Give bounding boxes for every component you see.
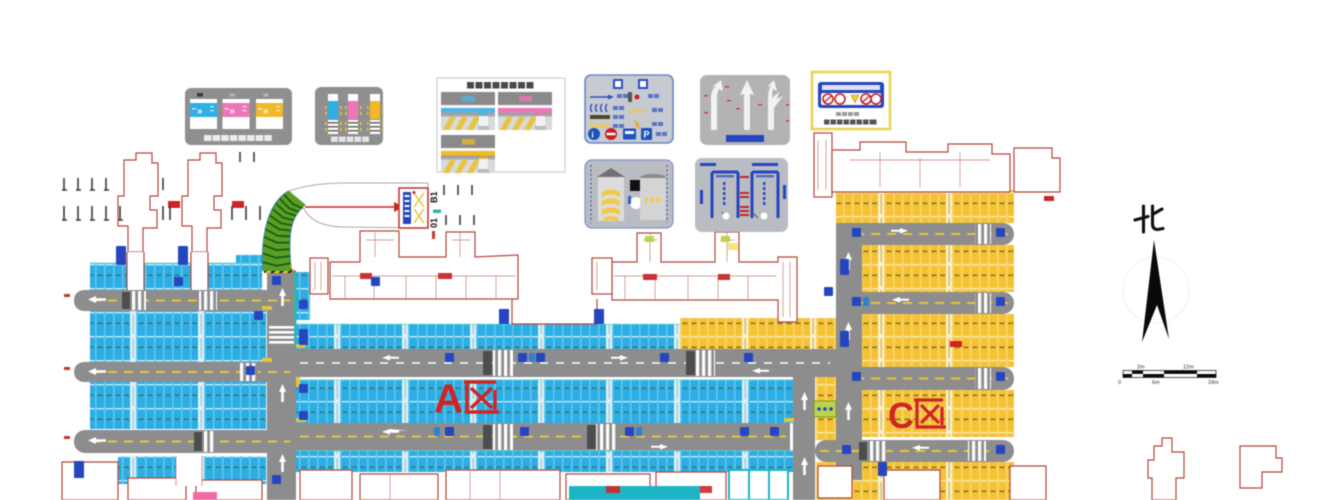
svg-text:0: 0 (1118, 380, 1121, 386)
svg-text:01: 01 (429, 218, 439, 228)
svg-text:12m: 12m (1183, 365, 1194, 371)
svg-text:A: A (434, 377, 463, 421)
svg-text:24m: 24m (1208, 380, 1219, 386)
svg-text:6m: 6m (1152, 380, 1160, 386)
svg-text:»: » (197, 106, 203, 117)
svg-text:»: » (263, 106, 269, 117)
svg-text:2m: 2m (1137, 365, 1145, 371)
svg-text:i: i (592, 131, 594, 140)
svg-text:»: » (230, 106, 236, 117)
svg-text:C: C (888, 395, 914, 436)
svg-text:B1: B1 (429, 191, 439, 203)
svg-text:P: P (644, 130, 650, 140)
